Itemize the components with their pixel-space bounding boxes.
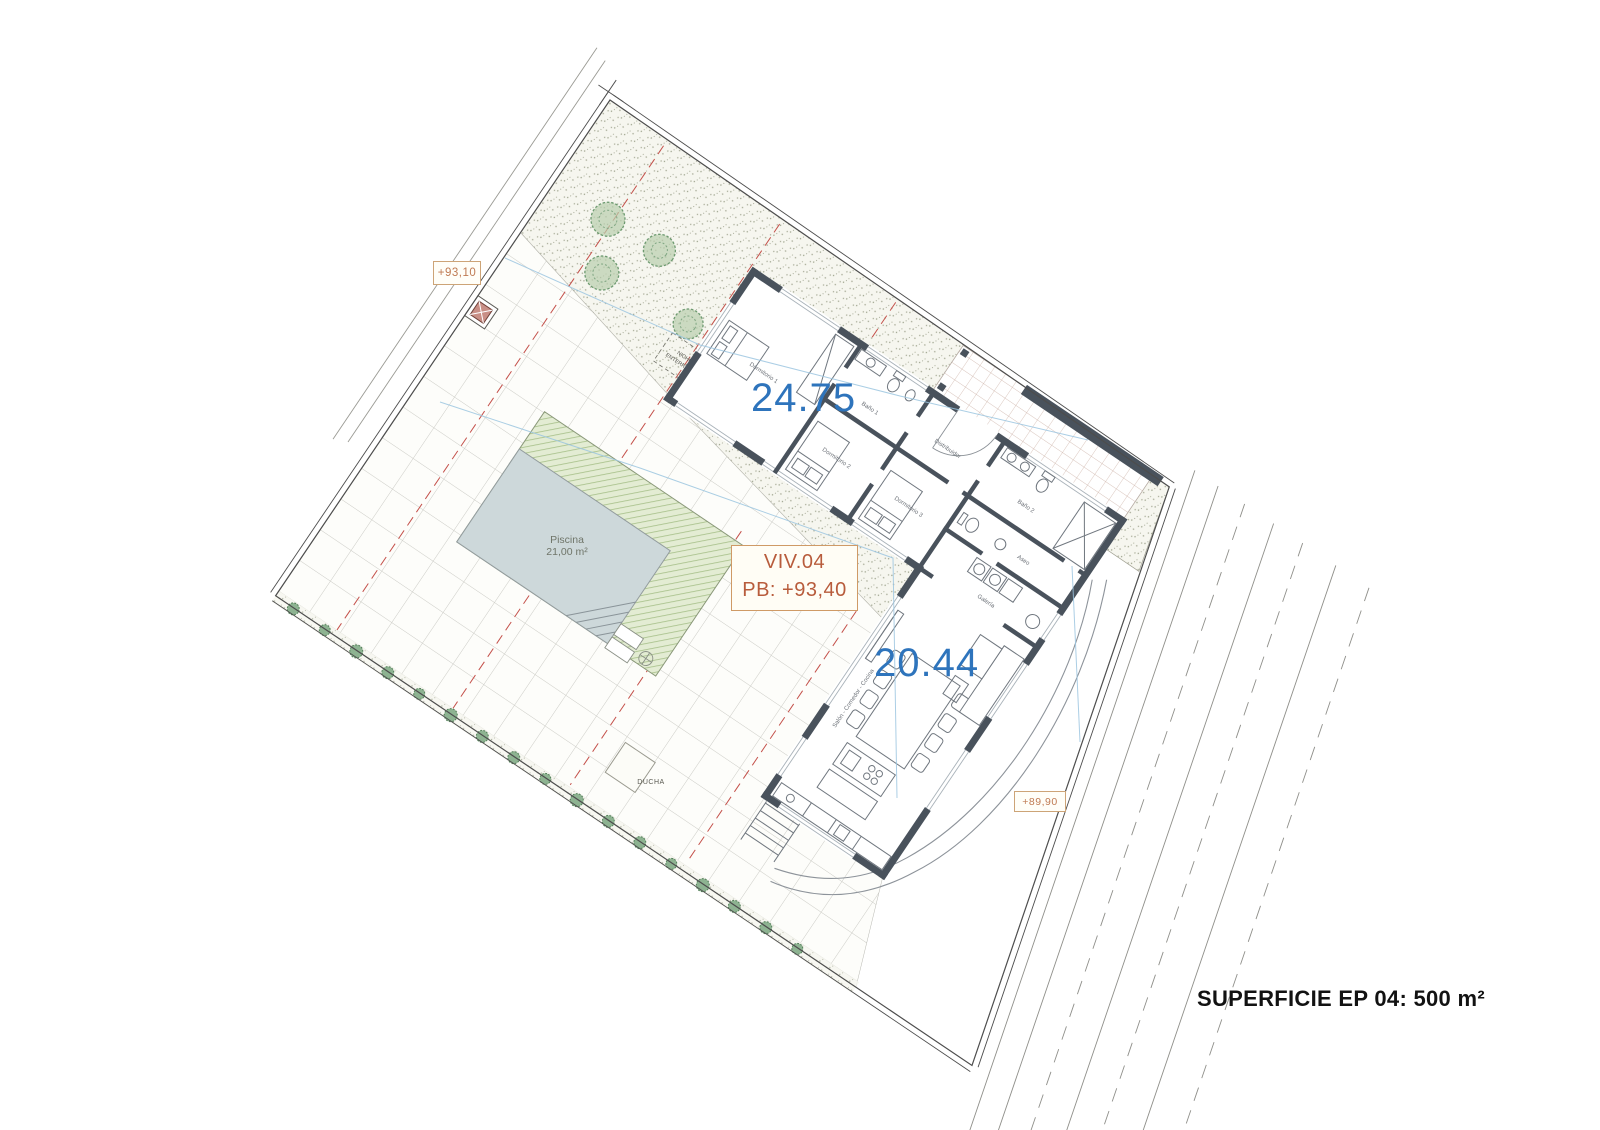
pool-title: Piscina [517, 534, 617, 546]
shower-label: DUCHA [626, 779, 676, 786]
elevation-bottom-value: +89,90 [1022, 796, 1057, 808]
elevation-top-value: +93,10 [438, 267, 477, 279]
elevation-label-bottom: +89,90 [1014, 791, 1066, 812]
living-wing-area-value: 20.44 [874, 641, 979, 686]
unit-name: VIV.04 [732, 548, 857, 576]
pool-area-value: 21,00 m² [517, 546, 617, 558]
unit-level: PB: +93,40 [732, 576, 857, 604]
bedroom-wing-area-value: 24.75 [751, 376, 856, 421]
elevation-label-top: +93,10 [433, 261, 481, 285]
pool-label: Piscina 21,00 m² [517, 534, 617, 558]
floor-plan-page: NICHO ENTERRADO [0, 0, 1600, 1130]
plot-surface-label: SUPERFICIE EP 04: 500 m² [1140, 986, 1485, 1012]
unit-info-box: VIV.04 PB: +93,40 [731, 545, 858, 611]
